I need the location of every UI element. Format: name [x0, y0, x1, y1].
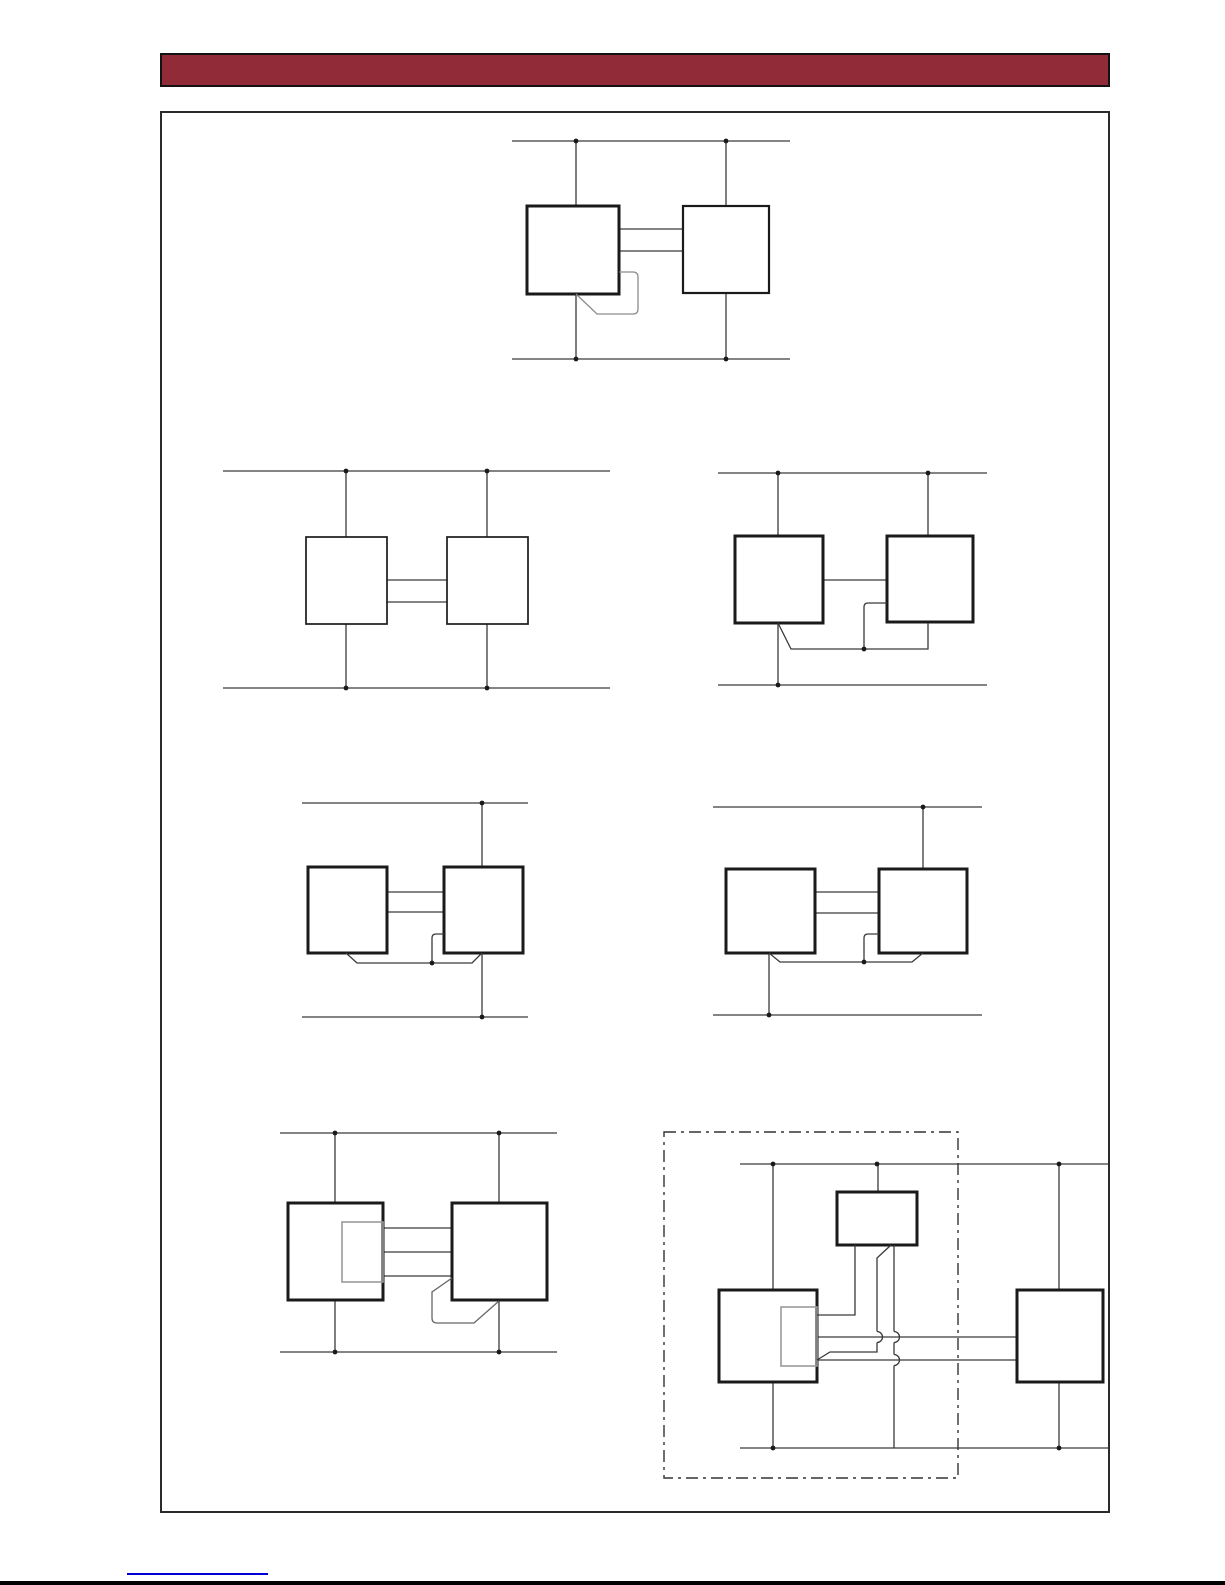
bottom-edge [0, 1581, 1225, 1585]
diagram-three-device-module [664, 1132, 1108, 1478]
document-page [0, 0, 1225, 1585]
diagram-pair-split-rails [713, 805, 982, 1018]
diagram-pair-simple-bus [223, 469, 610, 691]
diagram-pair-shared-bottom-wire [718, 471, 987, 688]
footer-link[interactable] [127, 1573, 268, 1575]
diagram-canvas [0, 0, 1225, 1585]
diagram-pair-with-inner-block [280, 1131, 557, 1355]
diagram-pair-right-rail-only [302, 801, 528, 1020]
diagram-top-pair-with-loopback [512, 139, 790, 362]
